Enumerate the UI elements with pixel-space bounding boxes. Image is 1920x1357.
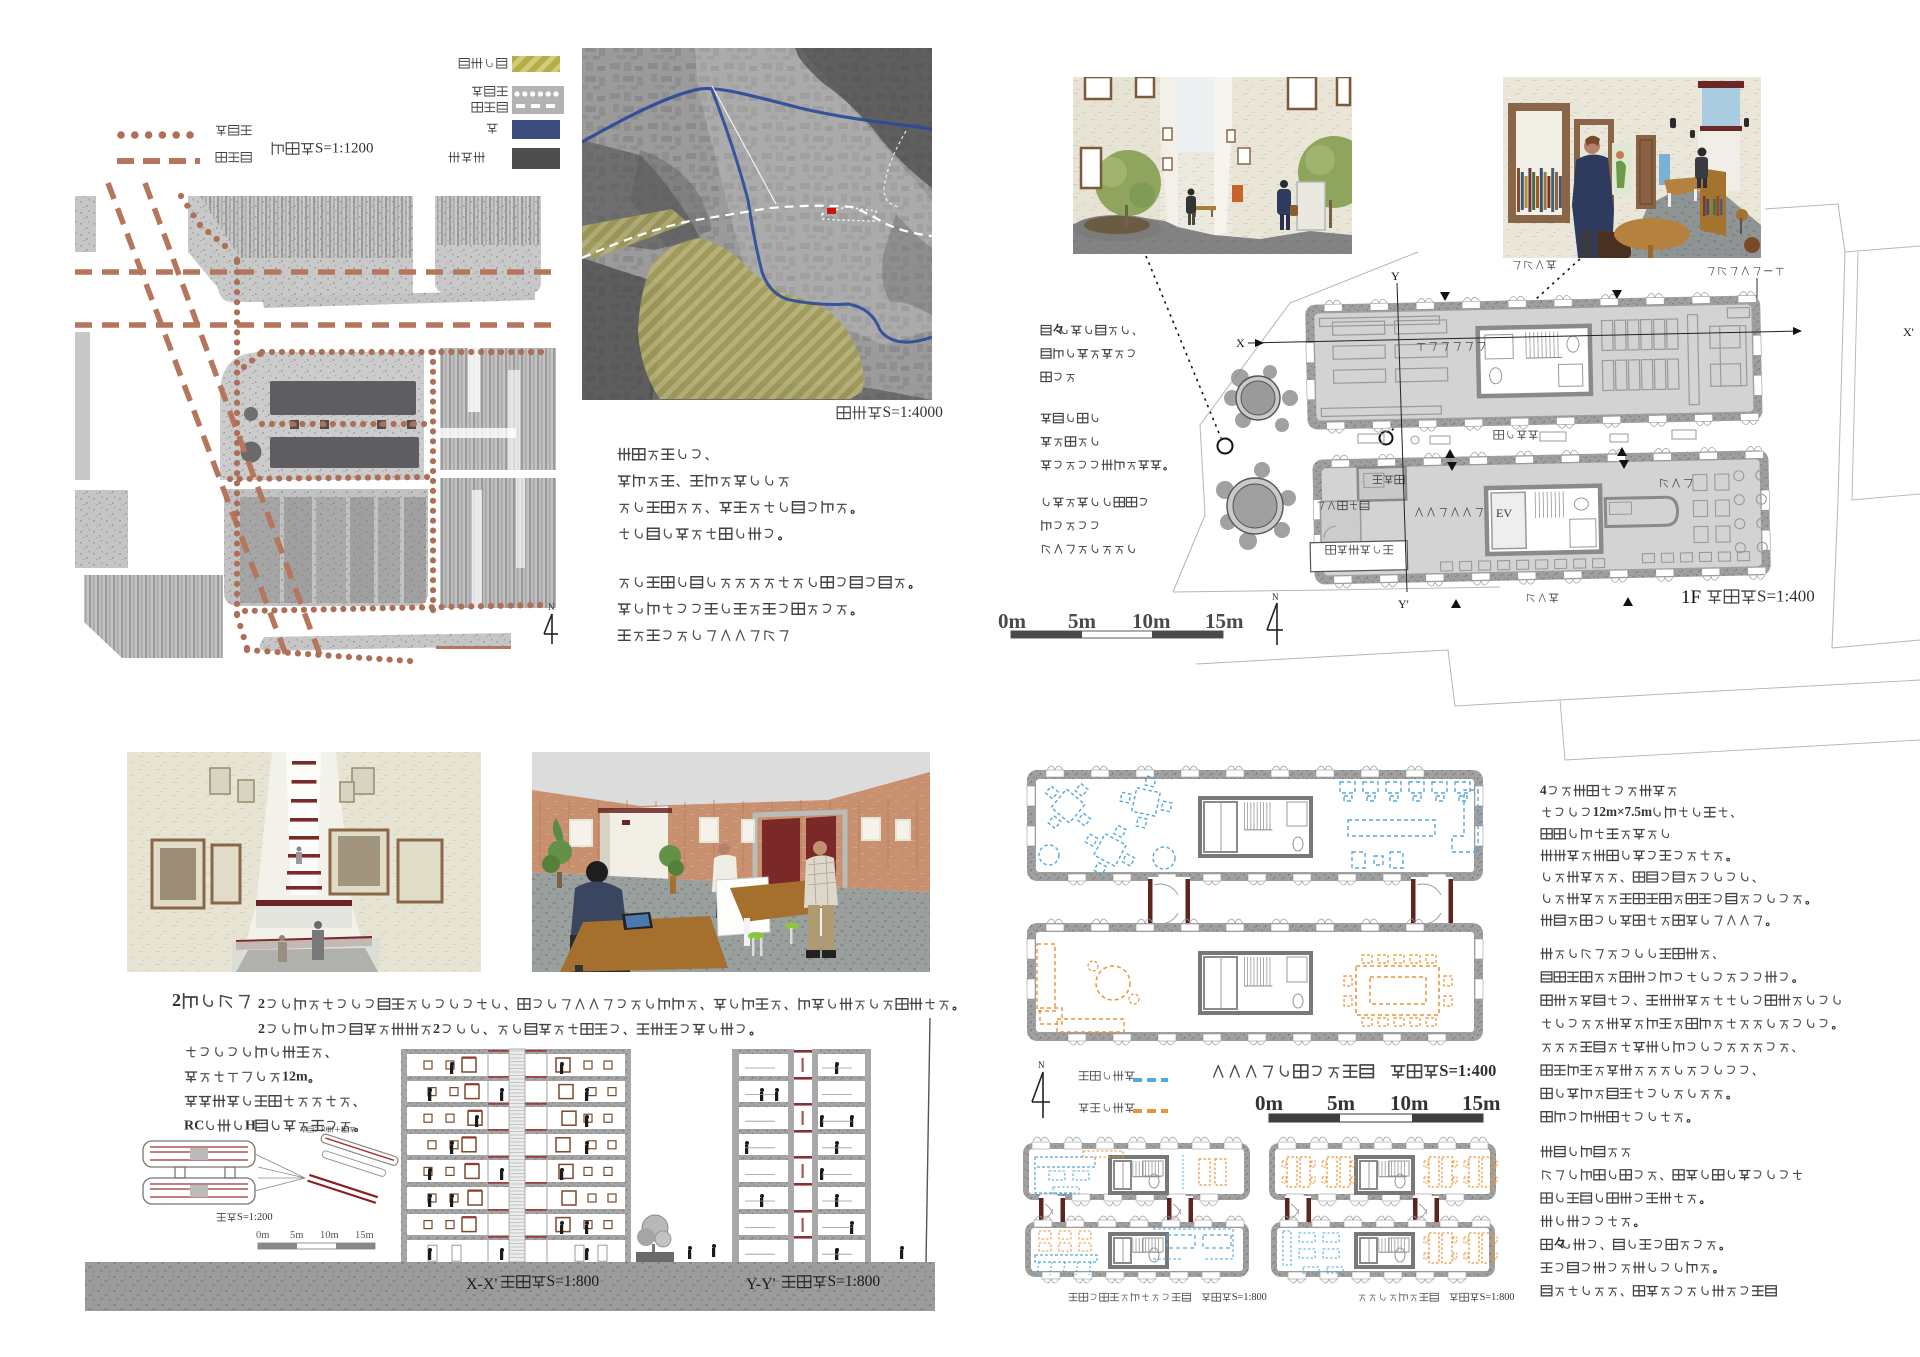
svg-text:X': X': [1903, 325, 1914, 339]
svg-text:S=1:400: S=1:400: [1757, 586, 1815, 605]
svg-text:0m: 0m: [998, 609, 1027, 633]
svg-text:12m: 12m: [282, 1069, 308, 1084]
svg-text:5m: 5m: [1327, 1091, 1356, 1115]
svg-text:N: N: [548, 602, 555, 612]
svg-text:N: N: [1272, 592, 1279, 602]
svg-text:S=1:400: S=1:400: [1439, 1061, 1496, 1080]
svg-text:X-X': X-X': [466, 1276, 497, 1293]
svg-text:EV: EV: [1496, 506, 1512, 520]
svg-text:2: 2: [258, 997, 265, 1012]
svg-text:RC: RC: [184, 1118, 204, 1133]
svg-text:12m×7.5m: 12m×7.5m: [1593, 804, 1652, 819]
svg-text:15m: 15m: [1462, 1091, 1501, 1115]
svg-text:2: 2: [433, 1022, 440, 1037]
svg-text:Y': Y': [1398, 597, 1409, 611]
svg-text:0m: 0m: [256, 1230, 269, 1241]
svg-text:Y-Y': Y-Y': [746, 1276, 776, 1293]
svg-text:2: 2: [172, 990, 181, 1010]
svg-text:5m: 5m: [290, 1230, 303, 1241]
svg-text:2: 2: [258, 1022, 265, 1037]
svg-text:X: X: [1236, 336, 1245, 350]
svg-text:10m: 10m: [320, 1230, 339, 1241]
svg-text:々: 々: [1052, 323, 1064, 337]
svg-text:S=1:4000: S=1:4000: [883, 404, 944, 421]
svg-text:0m: 0m: [1255, 1091, 1284, 1115]
svg-text:S=1:800: S=1:800: [828, 1273, 881, 1290]
svg-text:15m: 15m: [1205, 609, 1244, 633]
svg-text:5m: 5m: [1068, 609, 1097, 633]
svg-text:H: H: [245, 1118, 256, 1133]
svg-text:S=1:800: S=1:800: [547, 1273, 600, 1290]
svg-text:Y: Y: [1391, 269, 1400, 283]
svg-text:S=1:1200: S=1:1200: [315, 141, 373, 157]
svg-text:S=1:800: S=1:800: [1480, 1292, 1515, 1303]
svg-text:15m: 15m: [355, 1230, 374, 1241]
svg-text:S=1:200: S=1:200: [237, 1212, 273, 1223]
svg-text:S=1:800: S=1:800: [1232, 1292, 1267, 1303]
svg-text:10m: 10m: [1132, 609, 1171, 633]
svg-text:々: 々: [1553, 1236, 1566, 1251]
svg-text:N: N: [1038, 1060, 1045, 1070]
svg-text:1F: 1F: [1681, 587, 1701, 608]
svg-text:4: 4: [1540, 782, 1547, 797]
svg-text:10m: 10m: [1390, 1091, 1429, 1115]
